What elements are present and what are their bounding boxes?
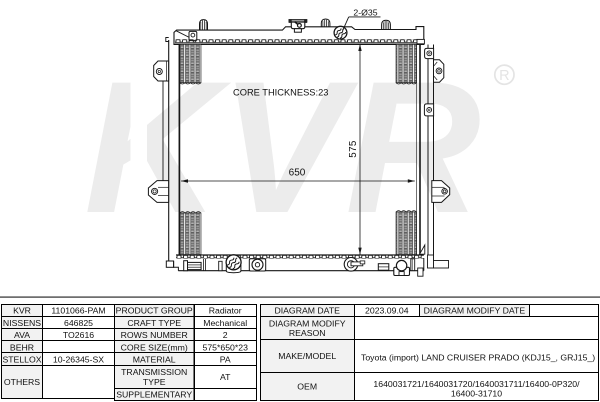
svg-text:TO2616: TO2616	[63, 330, 94, 340]
svg-text:BEHR: BEHR	[10, 342, 34, 352]
svg-text:646825: 646825	[64, 318, 93, 328]
svg-text:Mechanical: Mechanical	[203, 318, 247, 328]
svg-text:R: R	[499, 68, 509, 84]
svg-text:2-Ø35: 2-Ø35	[353, 8, 377, 18]
svg-text:CORE SIZE(mm): CORE SIZE(mm)	[121, 342, 188, 352]
svg-text:AVA: AVA	[14, 330, 30, 340]
svg-text:OEM: OEM	[297, 381, 317, 391]
svg-text:SUPPLEMENTARY: SUPPLEMENTARY	[116, 390, 192, 400]
svg-text:10-26345-SX: 10-26345-SX	[53, 355, 104, 365]
svg-text:1640031721/1640031720/16400317: 1640031721/1640031720/1640031711/16400-0…	[373, 379, 580, 389]
svg-text:DIAGRAM MODIFY DATE: DIAGRAM MODIFY DATE	[424, 305, 526, 315]
svg-text:NISSENS: NISSENS	[3, 318, 41, 328]
svg-text:Radiator: Radiator	[209, 306, 242, 316]
svg-text:MAKE/MODEL: MAKE/MODEL	[278, 351, 336, 361]
svg-text:1101066-PAM: 1101066-PAM	[51, 306, 105, 316]
svg-text:REASON: REASON	[289, 328, 326, 338]
svg-text:CRAFT TYPE: CRAFT TYPE	[127, 318, 181, 328]
svg-text:ROWS NUMBER: ROWS NUMBER	[121, 330, 188, 340]
svg-text:575*650*23: 575*650*23	[202, 342, 248, 352]
svg-text:650: 650	[289, 168, 306, 179]
svg-text:TRANSMISSION: TRANSMISSION	[121, 367, 187, 377]
svg-text:PRODUCT GROUP: PRODUCT GROUP	[116, 306, 193, 316]
svg-text:KVR: KVR	[13, 306, 31, 316]
svg-text:16400-31710: 16400-31710	[451, 389, 502, 399]
svg-text:MATERIAL: MATERIAL	[133, 355, 176, 365]
svg-text:DIAGRAM DATE: DIAGRAM DATE	[274, 305, 340, 315]
svg-text:CORE THICKNESS:23: CORE THICKNESS:23	[233, 87, 328, 97]
svg-text:OTHERS: OTHERS	[4, 377, 40, 387]
svg-text:Toyota (import) LAND CRUISER P: Toyota (import) LAND CRUISER PRADO (KDJ1…	[361, 353, 595, 363]
svg-text:TYPE: TYPE	[143, 377, 166, 387]
svg-text:575: 575	[348, 140, 359, 158]
svg-text:2023.09.04: 2023.09.04	[365, 305, 409, 315]
svg-text:PA: PA	[220, 355, 231, 365]
svg-text:STELLOX: STELLOX	[2, 355, 41, 365]
svg-text:2: 2	[223, 330, 228, 340]
svg-text:AT: AT	[220, 372, 231, 382]
